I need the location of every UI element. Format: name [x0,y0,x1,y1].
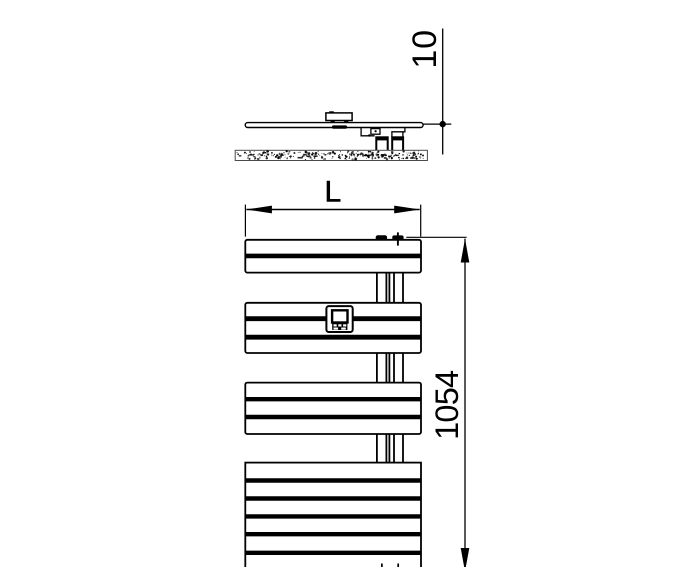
svg-text:1054: 1054 [429,370,465,440]
svg-text:L: L [324,176,341,209]
svg-text:10: 10 [406,29,444,68]
